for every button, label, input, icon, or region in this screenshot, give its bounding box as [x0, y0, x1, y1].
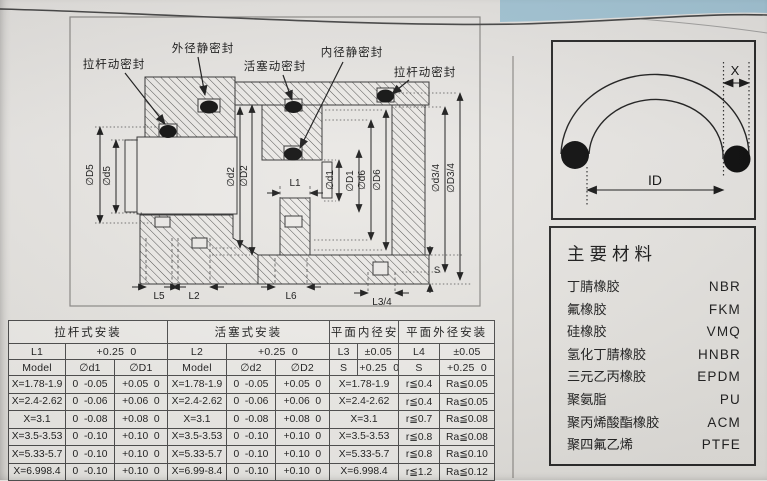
cell-tol: 0 -0.10: [66, 446, 115, 464]
dim-label-L5: L5: [153, 291, 165, 302]
material-item: 聚四氟乙烯PTFE: [567, 434, 741, 457]
cell-tol: +0.10 0: [114, 428, 167, 446]
cell-ra: Ra≦0.10: [439, 446, 494, 464]
seal-label-id-static: 内径静密封: [321, 45, 384, 59]
cell-tol: 0 -0.05: [66, 376, 115, 394]
cell-model: X=3.5-3.53: [167, 428, 226, 446]
cell-tol: 0 -0.08: [227, 411, 276, 429]
cell-model: X=3.1: [9, 411, 66, 429]
table-row: L1 +0.25 0 L2 +0.25 0 L3 ±0.05 L4 ±0.05: [9, 344, 495, 360]
dim-label-L6: L6: [285, 291, 297, 302]
dim-label-L1: L1: [289, 178, 301, 189]
table-row: Model ∅d1 ∅D1 Model ∅d2 ∅D2 S +0.25 0 S …: [9, 360, 495, 376]
cell-model: X=6.998.4: [9, 463, 66, 481]
header-L4: L4: [399, 344, 440, 360]
cell-tol: +0.10 0: [275, 446, 329, 464]
table-row: X=1.78-1.9 0 -0.05 +0.05 0 X=1.78-1.9 0 …: [9, 376, 495, 394]
cell-model: X=2.4-2.62: [167, 393, 226, 411]
header-L3-tol: ±0.05: [358, 344, 399, 360]
material-item: 聚氨脂PU: [567, 389, 741, 412]
dim-label-D1: ∅D1: [345, 170, 356, 192]
cell-tol: +0.10 0: [114, 446, 167, 464]
material-code: ACM: [707, 415, 741, 430]
table-row: X=3.1 0 -0.08 +0.08 0 X=3.1 0 -0.08 +0.0…: [9, 411, 495, 429]
cell-model: X=5.33-5.7: [9, 446, 66, 464]
cell-model: X=6.998.4: [329, 463, 398, 481]
cell-tol: +0.05 0: [275, 376, 329, 394]
cell-ra: Ra≦0.05: [439, 376, 494, 394]
material-code: VMQ: [707, 324, 741, 339]
dim-label-d6: ∅d6: [357, 170, 368, 190]
header-L4-tol: ±0.05: [439, 344, 494, 360]
cell-model: X=5.33-5.7: [329, 446, 398, 464]
header-model-1: Model: [9, 360, 66, 376]
dim-label-d1: ∅d1: [325, 170, 336, 190]
material-name: 氢化丁腈橡胶: [567, 344, 646, 363]
cell-r: r≦0.7: [399, 411, 440, 429]
dim-label-S: S: [434, 265, 440, 276]
header-D1: ∅D1: [114, 360, 167, 376]
cell-model: X=3.5-3.53: [9, 428, 66, 446]
dim-label-d2: ∅d2: [226, 167, 237, 187]
material-item: 氟橡胶FKM: [567, 299, 741, 322]
material-name: 三元乙丙橡胶: [567, 366, 646, 385]
o-ring-od-static: [200, 101, 218, 114]
cell-r: r≦0.4: [399, 393, 440, 411]
cell-r: r≦0.8: [399, 446, 440, 464]
dim-label-L34: L3/4: [372, 297, 392, 308]
header-L2: L2: [167, 344, 226, 360]
cell-model: X=1.78-1.9: [9, 376, 66, 394]
cross-section-drawing: 拉杆动密封 外径静密封 活塞动密封 内径静密封 拉杆动密封 ∅D5 ∅d5 ∅d…: [62, 10, 492, 315]
material-name: 聚丙烯酸酯橡胶: [567, 412, 659, 431]
material-code: FKM: [709, 302, 741, 317]
table-row: 拉杆式安装 活塞式安装 平面内径安装 平面外径安装: [9, 321, 495, 344]
materials-box: 主要材料 丁腈橡胶NBR 氟橡胶FKM 硅橡胶VMQ 氢化丁腈橡胶HNBR 三元…: [549, 226, 756, 466]
cell-model: X=1.78-1.9: [167, 376, 226, 394]
materials-list: 丁腈橡胶NBR 氟橡胶FKM 硅橡胶VMQ 氢化丁腈橡胶HNBR 三元乙丙橡胶E…: [567, 276, 741, 457]
material-code: NBR: [709, 279, 741, 294]
table-row: X=5.33-5.7 0 -0.10 +0.10 0 X=5.33-5.7 0 …: [9, 446, 495, 464]
material-item: 氢化丁腈橡胶HNBR: [567, 344, 741, 367]
material-name: 氟橡胶: [567, 299, 607, 318]
cell-tol: +0.06 0: [114, 393, 167, 411]
cell-tol: +0.08 0: [114, 411, 167, 429]
cell-model: X=6.99-8.4: [167, 463, 226, 481]
cell-tol: 0 -0.05: [227, 376, 276, 394]
material-item: 丁腈橡胶NBR: [567, 276, 741, 299]
section-title-face-od: 平面外径安装: [399, 321, 495, 344]
cell-r: r≦0.4: [399, 376, 440, 394]
material-code: EPDM: [697, 369, 741, 384]
seal-label-rod-left: 拉杆动密封: [83, 57, 146, 71]
page-edge-curve-2: [640, 19, 767, 33]
header-S-id: S: [329, 360, 358, 376]
materials-title: 主要材料: [567, 241, 741, 266]
cell-tol: 0 -0.08: [66, 411, 115, 429]
cell-tol: +0.10 0: [275, 463, 329, 481]
dim-label-d5: ∅d5: [102, 166, 113, 186]
section-title-piston: 活塞式安装: [167, 321, 329, 344]
cell-tol: 0 -0.10: [227, 463, 276, 481]
cell-model: X=3.1: [329, 411, 398, 429]
table-row: X=6.998.4 0 -0.10 +0.10 0 X=6.99-8.4 0 -…: [9, 463, 495, 481]
header-D2: ∅D2: [275, 360, 329, 376]
o-ring-rod-right: [377, 90, 394, 103]
material-code: PTFE: [702, 437, 741, 452]
material-code: PU: [720, 392, 741, 407]
table-row: X=2.4-2.62 0 -0.06 +0.06 0 X=2.4-2.62 0 …: [9, 393, 495, 411]
cell-model: X=5.33-5.7: [167, 446, 226, 464]
seal-label-od-static: 外径静密封: [172, 41, 235, 55]
dim-label-D2: ∅D2: [239, 165, 250, 187]
o-ring-piston: [285, 101, 302, 113]
header-S-id-tol: +0.25 0: [358, 360, 399, 376]
dim-label-D5: ∅D5: [85, 164, 96, 186]
oring-diagram-box: X ID: [551, 40, 756, 220]
cell-tol: 0 -0.10: [227, 428, 276, 446]
material-name: 硅橡胶: [567, 321, 607, 340]
material-code: HNBR: [698, 347, 741, 362]
page-top-edge: [0, 0, 767, 36]
cell-tol: +0.08 0: [275, 411, 329, 429]
rod-body: [137, 137, 237, 214]
oring-diagram: X ID: [553, 42, 753, 217]
header-L1-tol: +0.25 0: [66, 344, 168, 360]
cell-tol: +0.05 0: [114, 376, 167, 394]
base-slab: [258, 255, 429, 284]
material-name: 聚四氟乙烯: [567, 434, 633, 453]
cell-tol: +0.10 0: [114, 463, 167, 481]
header-S-od-tol: +0.25 0: [439, 360, 494, 376]
cell-model: X=3.1: [167, 411, 226, 429]
cell-model: X=1.78-1.9: [329, 376, 398, 394]
cell-ra: Ra≦0.12: [439, 463, 494, 481]
header-L1: L1: [9, 344, 66, 360]
cell-model: X=2.4-2.62: [329, 393, 398, 411]
material-name: 丁腈橡胶: [567, 276, 620, 295]
cell-tol: 0 -0.06: [227, 393, 276, 411]
cell-tol: +0.10 0: [275, 428, 329, 446]
section-title-face-id: 平面内径安装: [329, 321, 398, 344]
header-model-2: Model: [167, 360, 226, 376]
table-row: X=3.5-3.53 0 -0.10 +0.10 0 X=3.5-3.53 0 …: [9, 428, 495, 446]
material-item: 聚丙烯酸酯橡胶ACM: [567, 412, 741, 435]
o-ring-rod-left: [160, 125, 177, 138]
cell-r: r≦1.2: [399, 463, 440, 481]
dim-label-L2: L2: [188, 291, 200, 302]
page-fold-line: [512, 56, 514, 478]
cell-model: X=3.5-3.53: [329, 428, 398, 446]
rod-end-cap: [125, 140, 137, 212]
material-item: 三元乙丙橡胶EPDM: [567, 366, 741, 389]
id-dimension-label: ID: [648, 172, 662, 188]
cell-ra: Ra≦0.08: [439, 411, 494, 429]
dim-label-d34: ∅d3/4: [431, 163, 442, 192]
cell-ra: Ra≦0.05: [439, 393, 494, 411]
cell-tol: 0 -0.10: [66, 428, 115, 446]
oring-section-left: [561, 141, 589, 169]
header-L2-tol: +0.25 0: [227, 344, 330, 360]
seal-label-rod-right: 拉杆动密封: [394, 65, 457, 79]
cell-tol: 0 -0.10: [66, 463, 115, 481]
cell-tol: +0.06 0: [275, 393, 329, 411]
header-d2: ∅d2: [227, 360, 276, 376]
cell-r: r≦0.8: [399, 428, 440, 446]
header-d1: ∅d1: [66, 360, 115, 376]
seal-label-piston: 活塞动密封: [244, 59, 307, 73]
material-item: 硅橡胶VMQ: [567, 321, 741, 344]
oring-section-right: [724, 146, 751, 173]
header-S-od: S: [399, 360, 440, 376]
cell-tol: 0 -0.10: [227, 446, 276, 464]
cell-tol: 0 -0.06: [66, 393, 115, 411]
header-L3: L3: [329, 344, 358, 360]
section-title-rod: 拉杆式安装: [9, 321, 168, 344]
o-ring-id-static: [284, 148, 302, 161]
x-dimension-label: X: [731, 63, 740, 78]
cell-ra: Ra≦0.08: [439, 428, 494, 446]
dim-label-D6: ∅D6: [372, 169, 383, 191]
dim-label-D34: ∅D3/4: [446, 163, 457, 193]
installation-spec-table: 拉杆式安装 活塞式安装 平面内径安装 平面外径安装 L1 +0.25 0 L2 …: [8, 320, 495, 481]
oring-arcs: [561, 74, 749, 159]
cell-model: X=2.4-2.62: [9, 393, 66, 411]
material-name: 聚氨脂: [567, 389, 607, 408]
